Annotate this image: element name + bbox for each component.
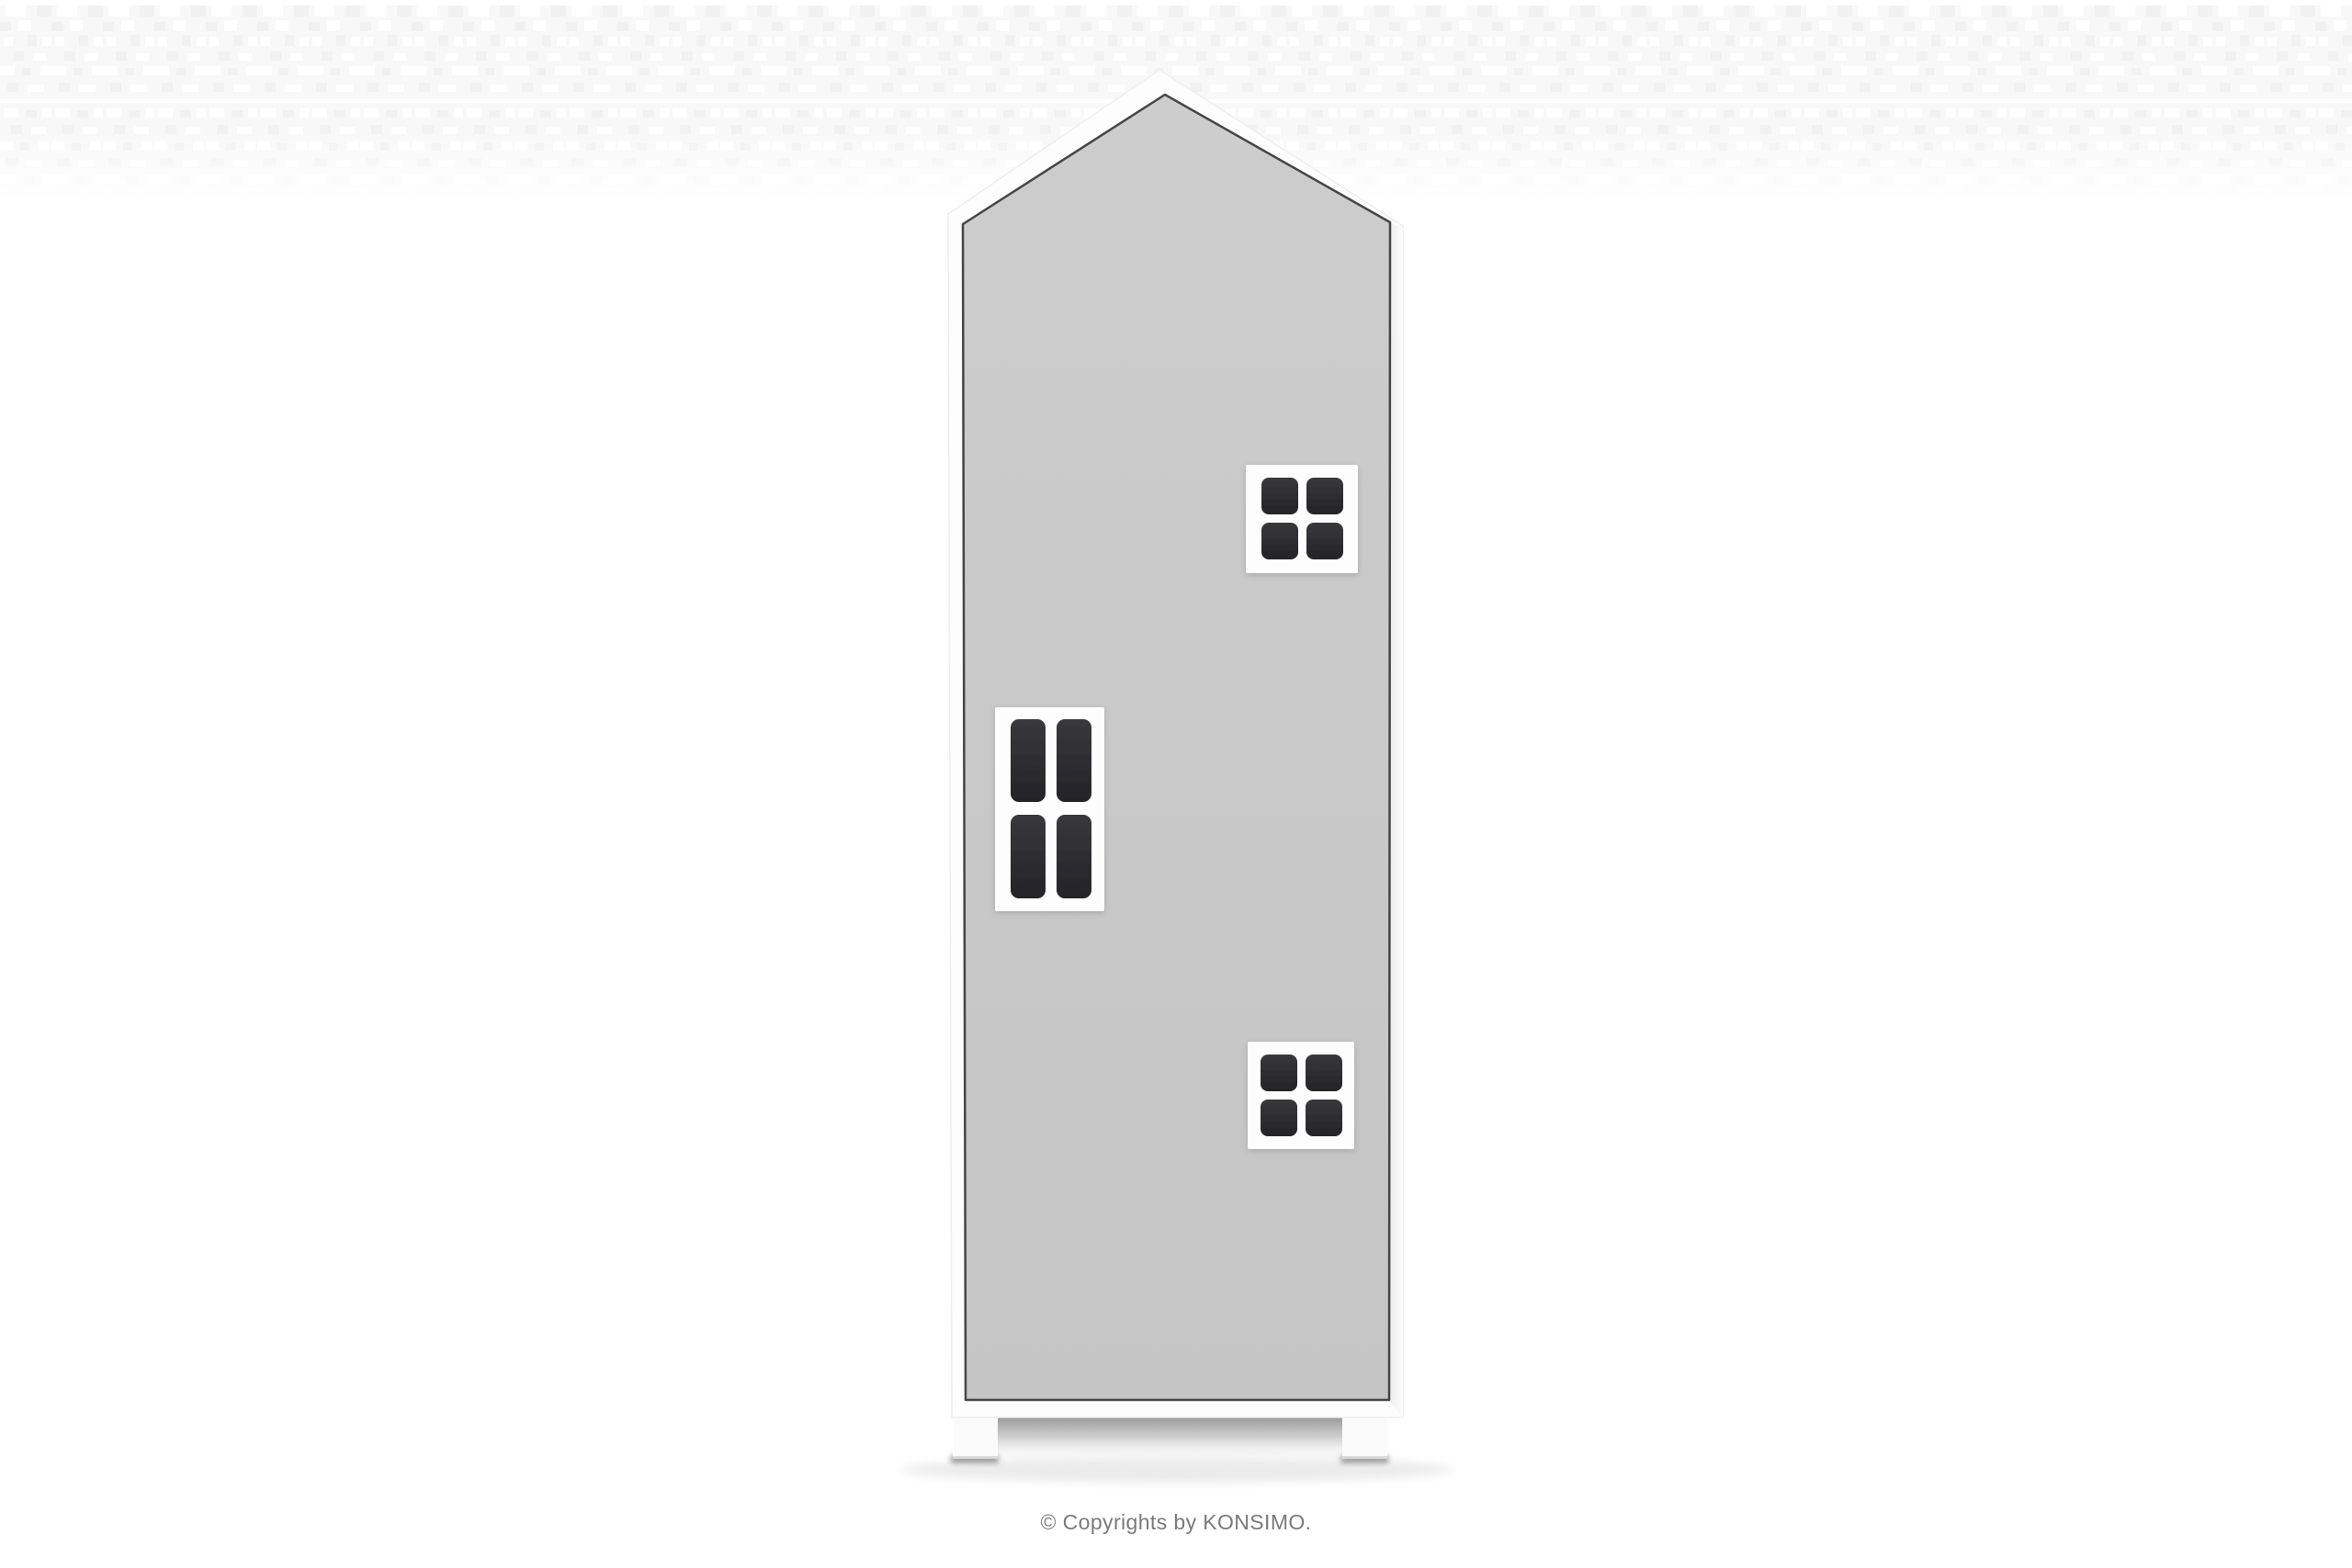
window-bottom — [1248, 1042, 1354, 1149]
window-pane — [1261, 1100, 1297, 1136]
window-pane — [1306, 478, 1343, 514]
foot-left — [953, 1417, 998, 1459]
product-photo: © Copyrights by KONSIMO. — [0, 0, 2352, 1568]
window-pane — [1306, 1100, 1342, 1136]
wardrobe — [948, 70, 1403, 1459]
window-middle — [995, 707, 1104, 911]
window-pane — [1011, 815, 1046, 898]
window-pane — [1011, 719, 1046, 802]
window-pane — [1057, 815, 1091, 898]
window-pane — [1261, 478, 1298, 514]
under-cabinet-shadow — [994, 1415, 1349, 1464]
wardrobe-frame-side — [1390, 223, 1403, 1417]
window-top — [1246, 465, 1358, 573]
product-image — [0, 0, 2352, 1568]
window-pane — [1261, 523, 1298, 559]
window-pane — [1306, 1055, 1342, 1091]
foot-right — [1342, 1417, 1387, 1459]
copyright-text: © Copyrights by KONSIMO. — [0, 1510, 2352, 1536]
window-pane — [1261, 1055, 1297, 1091]
window-pane — [1306, 523, 1343, 559]
window-pane — [1057, 719, 1091, 802]
